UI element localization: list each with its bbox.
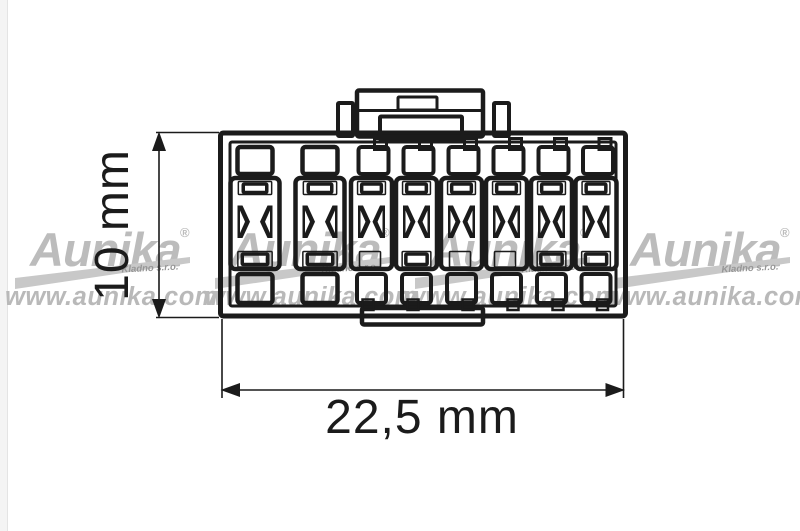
slot-clip-bottom [406, 254, 427, 265]
slot-clip-top [243, 184, 267, 193]
slot-clip-bottom [307, 254, 332, 265]
slot-clip-bottom [242, 254, 267, 265]
height-dimension: 10 mm [86, 132, 219, 319]
slot-clip-bottom [541, 254, 562, 265]
pin-hole-top [494, 147, 524, 174]
dimension-arrow-left [221, 383, 241, 397]
slot-window-bottom [450, 252, 471, 268]
slot-clip-top [497, 184, 517, 193]
dimension-arrow-down [152, 299, 166, 319]
pin-hole-top [539, 147, 569, 174]
pin-hole-top [583, 147, 613, 174]
pin-hole-top [359, 147, 389, 174]
width-dimension: 22,5 mm [221, 319, 626, 444]
pin-hole-top [449, 147, 479, 174]
slot-window-bottom [360, 252, 381, 268]
slot-clip-bottom [585, 254, 606, 265]
diagram-canvas: Aunika ® Kladno s.r.o. www.aunika.com Au… [0, 0, 800, 531]
pin-hole-bottom [238, 274, 273, 303]
slot-clip-top [586, 184, 606, 193]
height-dimension-label: 10 mm [86, 149, 139, 301]
pin-hole-top [238, 147, 273, 174]
latch-tab [398, 97, 437, 110]
slot-clip-top [362, 184, 382, 193]
slot-clip-top [407, 184, 427, 193]
connector-diagram-svg: 10 mm 22,5 mm [0, 0, 800, 531]
dimension-arrow-up [152, 132, 166, 152]
dimension-arrow-right [606, 383, 626, 397]
slot-clip-top [542, 184, 562, 193]
pin-hole-bottom [303, 274, 338, 303]
slot-clip-top [308, 184, 332, 193]
pin-hole-top [303, 147, 338, 174]
connector-drawing [221, 91, 626, 325]
width-dimension-label: 22,5 mm [325, 391, 519, 444]
pin-hole-top [404, 147, 434, 174]
slot-window-bottom [495, 252, 516, 268]
slot-clip-top [452, 184, 472, 193]
